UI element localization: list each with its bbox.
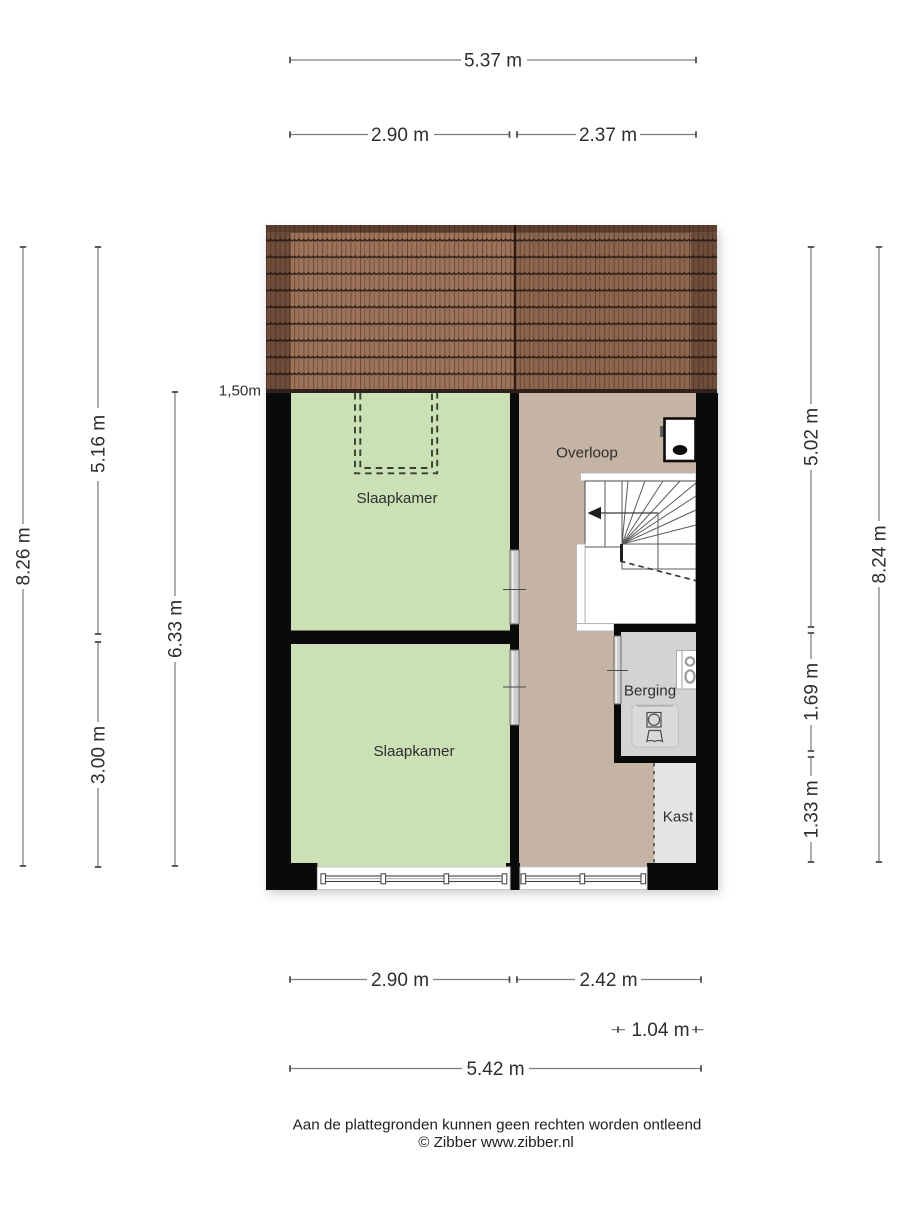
svg-text:1,50m: 1,50m: [219, 383, 261, 400]
svg-text:8.24 m: 8.24 m: [870, 525, 891, 583]
svg-text:Aan de plattegronden kunnen ge: Aan de plattegronden kunnen geen rechten…: [293, 1117, 702, 1134]
svg-text:2.37 m: 2.37 m: [579, 125, 637, 146]
svg-text:Slaapkamer: Slaapkamer: [356, 490, 437, 507]
svg-text:5.42 m: 5.42 m: [466, 1059, 524, 1080]
svg-text:5.16 m: 5.16 m: [89, 415, 110, 473]
svg-text:8.26 m: 8.26 m: [14, 527, 35, 585]
svg-text:3.00 m: 3.00 m: [89, 726, 110, 784]
svg-text:Overloop: Overloop: [556, 445, 618, 462]
svg-text:2.90 m: 2.90 m: [371, 970, 429, 991]
svg-text:6.33 m: 6.33 m: [166, 600, 187, 658]
svg-text:2.90 m: 2.90 m: [371, 125, 429, 146]
svg-text:Kast: Kast: [663, 809, 694, 826]
svg-text:1.69 m: 1.69 m: [802, 663, 823, 721]
svg-text:2.42 m: 2.42 m: [579, 970, 637, 991]
svg-text:1.04 m: 1.04 m: [631, 1020, 689, 1041]
svg-text:5.02 m: 5.02 m: [802, 408, 823, 466]
svg-text:Slaapkamer: Slaapkamer: [373, 743, 454, 760]
svg-text:Berging: Berging: [624, 683, 676, 700]
svg-text:5.37 m: 5.37 m: [464, 51, 522, 72]
svg-text:1.33 m: 1.33 m: [802, 780, 823, 838]
svg-text:© Zibber www.zibber.nl: © Zibber www.zibber.nl: [418, 1134, 574, 1151]
